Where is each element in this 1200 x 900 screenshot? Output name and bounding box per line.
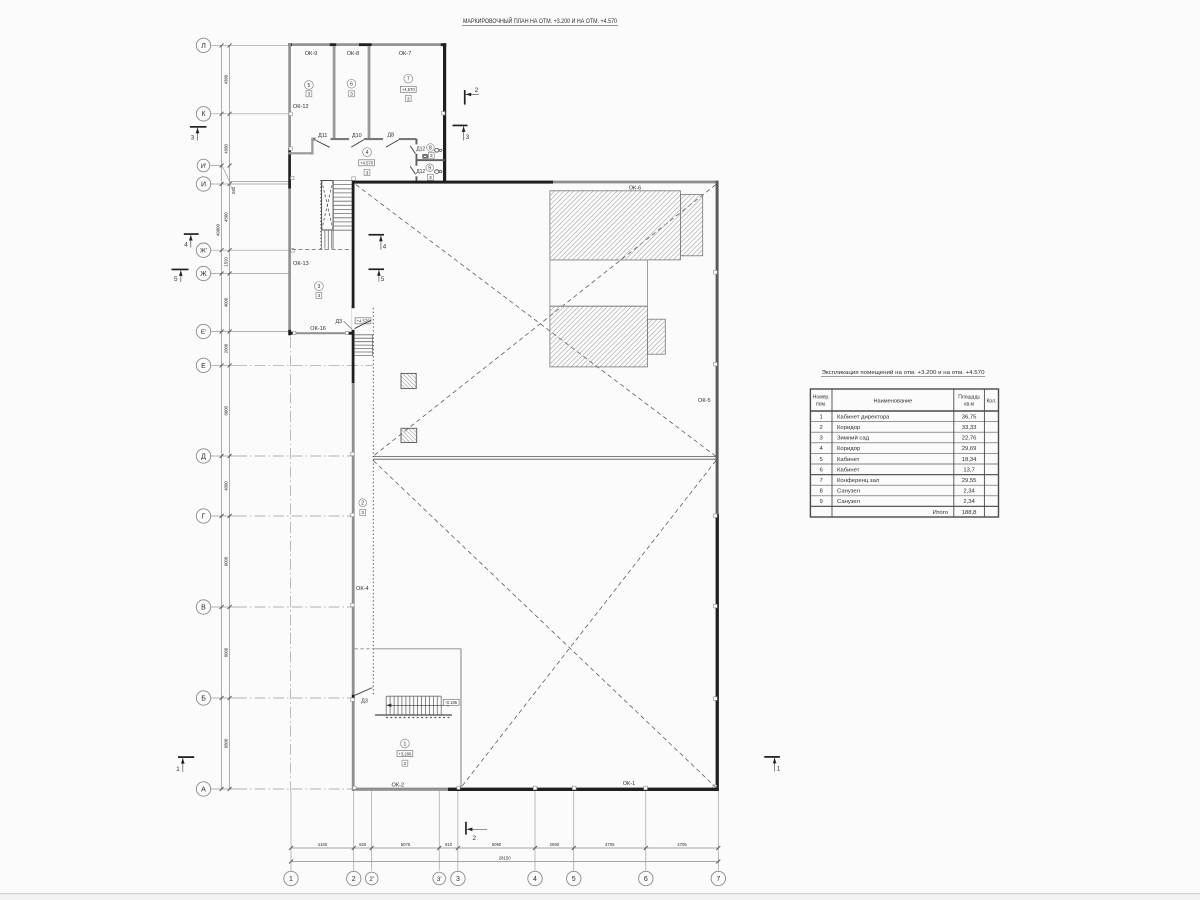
svg-text:ОК-9: ОК-9 <box>305 51 318 57</box>
svg-text:1: 1 <box>820 414 823 420</box>
svg-text:МАРКИРОВОЧНЫЙ ПЛАН НА ОТМ. +3.: МАРКИРОВОЧНЫЙ ПЛАН НА ОТМ. +3.200 И НА О… <box>463 16 617 25</box>
svg-text:Д12: Д12 <box>416 147 425 153</box>
svg-text:Д8: Д8 <box>387 133 394 139</box>
svg-text:Конференц зал: Конференц зал <box>837 478 880 484</box>
svg-text:-0.185: -0.185 <box>445 700 458 705</box>
svg-text:Кабинет: Кабинет <box>837 467 860 473</box>
svg-text:6000: 6000 <box>224 556 229 566</box>
svg-text:28150: 28150 <box>499 856 512 861</box>
svg-text:Итого: Итого <box>933 510 949 516</box>
svg-text:2590: 2590 <box>550 842 560 847</box>
svg-text:5: 5 <box>174 276 178 283</box>
svg-text:И': И' <box>201 163 207 170</box>
svg-text:8: 8 <box>429 145 432 151</box>
svg-text:9: 9 <box>428 166 431 172</box>
svg-text:Коридор: Коридор <box>837 446 861 452</box>
svg-text:5090: 5090 <box>492 842 502 847</box>
svg-text:пом.: пом. <box>816 402 826 408</box>
svg-text:4150: 4150 <box>318 842 328 847</box>
svg-text:1: 1 <box>404 741 407 747</box>
svg-text:И: И <box>201 181 206 188</box>
svg-text:2: 2 <box>361 501 364 507</box>
svg-text:36,75: 36,75 <box>962 414 977 420</box>
svg-text:Д: Д <box>201 453 206 460</box>
svg-text:Зимний сад: Зимний сад <box>837 435 870 442</box>
svg-text:+4.570: +4.570 <box>357 319 371 324</box>
svg-text:6800: 6800 <box>224 738 229 748</box>
svg-text:+4.570: +4.570 <box>360 161 374 166</box>
svg-text:+4.570: +4.570 <box>402 87 416 92</box>
svg-text:3: 3 <box>308 92 311 97</box>
svg-text:А: А <box>201 786 206 793</box>
svg-text:Е: Е <box>201 363 206 370</box>
svg-text:ОК-5: ОК-5 <box>698 398 711 404</box>
svg-text:3': 3' <box>437 876 442 883</box>
svg-text:Кабинет директора: Кабинет директора <box>837 414 890 420</box>
svg-text:Д11: Д11 <box>318 133 327 139</box>
svg-text:Д10: Д10 <box>352 133 362 139</box>
svg-text:925: 925 <box>359 842 367 847</box>
svg-text:Д12: Д12 <box>416 169 425 175</box>
svg-text:3: 3 <box>407 96 410 101</box>
svg-text:4500: 4500 <box>224 212 229 222</box>
svg-text:49000: 49000 <box>216 223 221 236</box>
svg-text:29,69: 29,69 <box>962 446 977 452</box>
svg-text:3: 3 <box>429 175 432 180</box>
svg-text:4: 4 <box>533 876 537 883</box>
svg-text:2: 2 <box>475 87 479 94</box>
svg-text:Кабинет: Кабинет <box>837 457 860 463</box>
svg-text:22,76: 22,76 <box>962 436 977 442</box>
svg-text:ОК-4: ОК-4 <box>356 586 369 592</box>
svg-text:1520: 1520 <box>224 257 229 267</box>
svg-text:3: 3 <box>361 510 364 515</box>
svg-text:6000: 6000 <box>224 405 229 415</box>
svg-text:Б: Б <box>201 695 206 702</box>
svg-text:5: 5 <box>308 83 311 89</box>
svg-text:2: 2 <box>473 835 477 842</box>
svg-text:кв.м: кв.м <box>964 402 974 408</box>
svg-text:+3.200: +3.200 <box>398 751 412 756</box>
svg-text:Наименование: Наименование <box>874 399 913 405</box>
svg-text:1: 1 <box>289 876 293 883</box>
svg-text:В: В <box>201 604 206 611</box>
svg-text:Г: Г <box>202 513 206 520</box>
svg-text:4000: 4000 <box>224 481 229 491</box>
svg-text:2000: 2000 <box>224 343 229 353</box>
svg-text:13,7: 13,7 <box>963 467 974 473</box>
svg-text:9: 9 <box>820 499 823 505</box>
svg-text:Кол.: Кол. <box>987 399 997 405</box>
svg-text:6: 6 <box>644 876 648 883</box>
svg-text:ОК-1: ОК-1 <box>623 781 636 787</box>
svg-text:5: 5 <box>381 276 385 283</box>
svg-text:2: 2 <box>404 761 407 766</box>
svg-text:4: 4 <box>184 242 188 249</box>
svg-text:Коридор: Коридор <box>837 425 861 431</box>
svg-text:3: 3 <box>318 293 321 298</box>
svg-text:4705: 4705 <box>605 842 615 847</box>
svg-text:5075: 5075 <box>401 842 411 847</box>
svg-text:Д3: Д3 <box>335 319 342 325</box>
svg-text:ОК-8: ОК-8 <box>347 51 360 57</box>
svg-text:Санузел: Санузел <box>837 499 861 505</box>
svg-text:7: 7 <box>716 876 720 883</box>
svg-text:4: 4 <box>366 150 369 156</box>
svg-text:3: 3 <box>466 134 470 141</box>
svg-text:7: 7 <box>407 77 410 83</box>
svg-text:4705: 4705 <box>677 842 687 847</box>
svg-text:3: 3 <box>191 135 195 142</box>
svg-text:5: 5 <box>572 876 576 883</box>
svg-text:4000: 4000 <box>224 297 229 307</box>
svg-text:Е': Е' <box>201 329 206 336</box>
svg-text:2: 2 <box>352 876 356 883</box>
svg-text:Экспликация помещений на отм.: Экспликация помещений на отм. +3.200 и н… <box>822 369 985 376</box>
svg-text:Л: Л <box>201 43 206 50</box>
svg-text:1: 1 <box>176 766 180 773</box>
svg-text:4: 4 <box>383 243 387 250</box>
svg-text:4980: 4980 <box>224 144 229 154</box>
svg-text:6: 6 <box>350 82 353 88</box>
svg-text:2,34: 2,34 <box>963 489 975 495</box>
svg-text:188,8: 188,8 <box>962 510 977 516</box>
svg-text:Ж': Ж' <box>200 248 207 255</box>
svg-text:29,55: 29,55 <box>962 478 977 484</box>
svg-text:Ж: Ж <box>200 271 207 278</box>
svg-text:6000: 6000 <box>224 647 229 657</box>
svg-text:2,34: 2,34 <box>963 499 975 505</box>
svg-text:2: 2 <box>820 425 823 431</box>
svg-text:3: 3 <box>456 876 460 883</box>
svg-text:3: 3 <box>366 170 369 175</box>
svg-text:Площадь: Площадь <box>958 395 980 401</box>
svg-text:ОК-16: ОК-16 <box>310 326 326 332</box>
svg-text:Д3: Д3 <box>361 698 368 704</box>
svg-text:ОК-12: ОК-12 <box>293 104 309 110</box>
svg-text:3: 3 <box>318 284 321 290</box>
svg-text:Санузел: Санузел <box>837 489 861 495</box>
svg-text:1: 1 <box>777 766 781 773</box>
svg-text:33,33: 33,33 <box>962 425 977 431</box>
svg-text:4380: 4380 <box>224 74 229 84</box>
svg-text:7: 7 <box>820 478 823 484</box>
svg-text:2': 2' <box>369 876 374 883</box>
svg-text:Номер.: Номер. <box>813 395 830 401</box>
svg-text:ОК-13: ОК-13 <box>293 261 309 267</box>
svg-text:910: 910 <box>445 842 453 847</box>
svg-text:ОК-7: ОК-7 <box>399 51 412 57</box>
svg-text:18,34: 18,34 <box>962 457 977 463</box>
svg-text:3: 3 <box>350 92 353 97</box>
svg-text:3: 3 <box>430 153 433 158</box>
